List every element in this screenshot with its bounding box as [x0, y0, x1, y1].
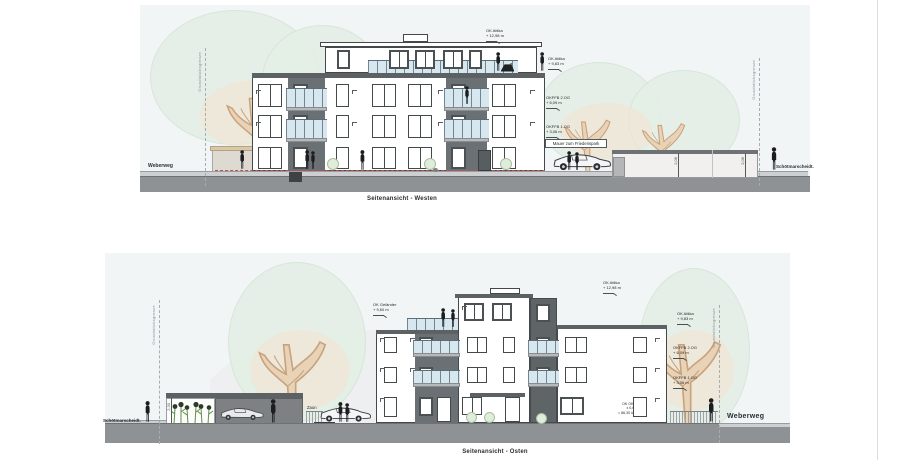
section-mark: [655, 398, 660, 402]
balcony-slab: [528, 353, 559, 357]
window: [384, 367, 397, 383]
leader-hook: [486, 38, 497, 42]
section-mark: [655, 338, 660, 342]
balcony-railing: [413, 340, 460, 353]
person-silhouette: [706, 398, 716, 423]
ground: [105, 423, 790, 443]
section-mark: [380, 338, 385, 342]
dimension-value: 2,06: [673, 157, 678, 165]
window: [451, 147, 466, 169]
dimension-line: [745, 153, 746, 177]
person-silhouette: [238, 150, 246, 170]
sheet-edge: [877, 0, 878, 460]
balcony-railing: [444, 119, 489, 138]
car: [551, 150, 613, 173]
window-mullion: [477, 368, 478, 382]
window: [492, 115, 516, 138]
balcony-slab: [413, 353, 460, 357]
leader-hook: [677, 321, 688, 325]
tower-roof-band: [455, 294, 533, 298]
balcony-slab: [413, 383, 460, 387]
person-silhouette: [463, 86, 471, 105]
balcony-slab: [444, 138, 489, 142]
entrance-door: [478, 150, 491, 171]
deck-chair: [501, 63, 514, 72]
section-mark: [352, 90, 357, 94]
wall-label-text: Mauer zum Friedenspark: [553, 141, 600, 146]
car: [219, 405, 265, 422]
balcony-railing: [286, 88, 327, 107]
balcony-railing: [528, 340, 559, 353]
shrub: [327, 158, 339, 170]
window: [467, 337, 487, 353]
window: [633, 397, 647, 417]
window-mullion: [474, 305, 475, 319]
elevation-label: OK Attika + 9,83 m: [677, 311, 694, 325]
leader-hook: [373, 312, 384, 316]
elevation-label: OK Attika + 9,83 m: [548, 56, 565, 70]
section-mark: [530, 122, 535, 126]
shrub: [484, 412, 495, 423]
window: [469, 50, 482, 69]
property-line-label: Grundstücksgrenze: [711, 308, 716, 348]
east-caption: Seitenansicht - Osten: [430, 449, 560, 455]
leader-hook: [546, 134, 557, 138]
elevation-label: OK Attika + 12,98 m: [603, 280, 621, 294]
window-mullion: [477, 338, 478, 352]
window: [336, 84, 349, 107]
window: [389, 50, 409, 69]
window-mullion: [420, 116, 421, 137]
balcony-slab: [286, 107, 327, 111]
elevation-label: OKFFB 1.OG + 3,06 m: [546, 124, 570, 138]
section-mark: [438, 122, 443, 126]
section-mark: [380, 368, 385, 372]
elevation-label: OK Geländer + 9,60 m: [373, 302, 396, 316]
window: [258, 147, 282, 169]
window: [467, 367, 487, 383]
person-silhouette: [573, 152, 581, 171]
window: [258, 115, 282, 138]
window-mullion: [453, 52, 454, 67]
leader-hook: [548, 66, 559, 70]
dimension-line: [678, 153, 679, 177]
window-mullion: [576, 338, 577, 352]
balcony-railing: [528, 370, 559, 383]
dimension-value: 2,06: [740, 157, 745, 165]
window: [415, 50, 435, 69]
section-mark: [256, 122, 261, 126]
property-line-label: Grundstücksgrenze: [151, 305, 156, 345]
property-line-label: Grundstücksgrenze: [197, 52, 202, 92]
window: [384, 397, 397, 417]
section-mark: [380, 398, 385, 402]
shrub: [424, 158, 436, 170]
window: [372, 147, 396, 169]
street-label-weberweg: Weberweg: [727, 413, 764, 420]
rooftop-box: [490, 288, 520, 294]
window: [503, 367, 515, 383]
window-mullion: [420, 85, 421, 106]
property-line: [719, 305, 720, 443]
parapet-band: [557, 325, 667, 329]
dimension-line: [171, 398, 172, 424]
window-mullion: [399, 52, 400, 67]
window: [565, 367, 587, 383]
window: [565, 337, 587, 353]
person-silhouette: [769, 147, 779, 171]
section-mark: [530, 90, 535, 94]
window: [384, 337, 397, 353]
window-mullion: [270, 116, 271, 137]
person-silhouette: [358, 150, 367, 171]
street-label-schoetmarscheidt: Schötmarscheidt.: [776, 164, 814, 169]
leader-hook: [603, 290, 614, 294]
sidewalk: [719, 423, 790, 427]
section-mark: [655, 368, 660, 372]
window-mullion: [425, 52, 426, 67]
section-mark: [410, 368, 415, 372]
window: [560, 397, 584, 415]
person-silhouette: [309, 151, 317, 170]
elevation-label: OKFFB 1.OG + 3,06 m: [673, 375, 697, 389]
entrance-door: [505, 397, 520, 422]
person-silhouette: [439, 308, 447, 328]
planter-plants: [168, 400, 214, 424]
window: [372, 84, 396, 107]
wall-door: [613, 157, 625, 177]
elevation-label: OKFFB 2.OG + 6,09 m: [673, 345, 697, 359]
elevation-label: OK Attika + 12,98 m: [486, 28, 504, 42]
street-label-weberweg: Weberweg: [148, 163, 173, 169]
window: [503, 337, 515, 353]
zaun-label: Zaun: [307, 405, 317, 410]
shrub: [500, 158, 512, 170]
section-mark: [352, 122, 357, 126]
person-silhouette: [449, 309, 457, 328]
window-mullion: [502, 305, 503, 319]
sheet: 2,06 2,06 Mauer zum Friedenspark Grundst…: [0, 0, 900, 460]
friedenspark-wall-cap: [612, 150, 758, 154]
wall-label: Mauer zum Friedenspark: [545, 139, 607, 148]
dimension-value: 2,30: [166, 403, 171, 411]
property-line: [759, 58, 760, 186]
window: [408, 84, 432, 107]
window-mullion: [504, 116, 505, 137]
window-mullion: [384, 116, 385, 137]
carport-roof: [166, 393, 303, 398]
window-mullion: [504, 85, 505, 106]
window-mullion: [384, 85, 385, 106]
balcony-slab: [444, 107, 489, 111]
section-mark: [438, 90, 443, 94]
window: [408, 115, 432, 138]
leader-hook: [546, 105, 557, 109]
window-mullion: [576, 368, 577, 382]
window: [492, 84, 516, 107]
level-red-line: [215, 170, 545, 171]
section-mark: [256, 90, 261, 94]
window-mullion: [270, 148, 271, 168]
window-mullion: [384, 148, 385, 168]
property-line: [205, 48, 206, 186]
balcony-railing: [286, 119, 327, 138]
window-mullion: [572, 399, 573, 413]
window: [633, 367, 647, 383]
ground: [140, 176, 810, 192]
shrub: [466, 412, 477, 423]
section-mark: [410, 338, 415, 342]
person-silhouette: [538, 52, 546, 72]
window: [419, 397, 433, 416]
balcony-railing: [413, 370, 460, 383]
person-silhouette: [143, 401, 152, 423]
window: [337, 50, 350, 69]
window: [336, 115, 349, 138]
balcony-slab: [528, 383, 559, 387]
section-mark: [462, 306, 467, 310]
person-silhouette: [268, 399, 278, 424]
window-mullion: [270, 85, 271, 106]
west-caption: Seitenansicht - Westen: [337, 196, 467, 202]
wall-joint: [712, 150, 713, 178]
balcony-slab: [286, 138, 327, 142]
street-label-schoetmarscheidt: Schötmarscheidt.: [103, 418, 141, 423]
elevation-label: OKFFB 2.OG + 6,09 m: [546, 95, 570, 109]
window: [536, 304, 550, 322]
property-line-label: Grundstücksgrenze: [751, 60, 756, 100]
window: [372, 115, 396, 138]
window: [258, 84, 282, 107]
basement-vent: [289, 172, 302, 182]
leader-hook: [673, 355, 684, 359]
window: [492, 303, 512, 321]
window: [443, 50, 463, 69]
roof-slab: [320, 42, 542, 47]
friedenspark-wall: [612, 150, 758, 178]
property-line: [159, 300, 160, 444]
leader-hook: [673, 385, 684, 389]
window-mullion: [420, 148, 421, 168]
person-silhouette: [343, 403, 351, 423]
balcony-door: [437, 397, 451, 422]
elevator-overrun: [403, 34, 428, 42]
shrub: [536, 413, 547, 424]
window: [633, 337, 647, 353]
window: [464, 303, 484, 321]
